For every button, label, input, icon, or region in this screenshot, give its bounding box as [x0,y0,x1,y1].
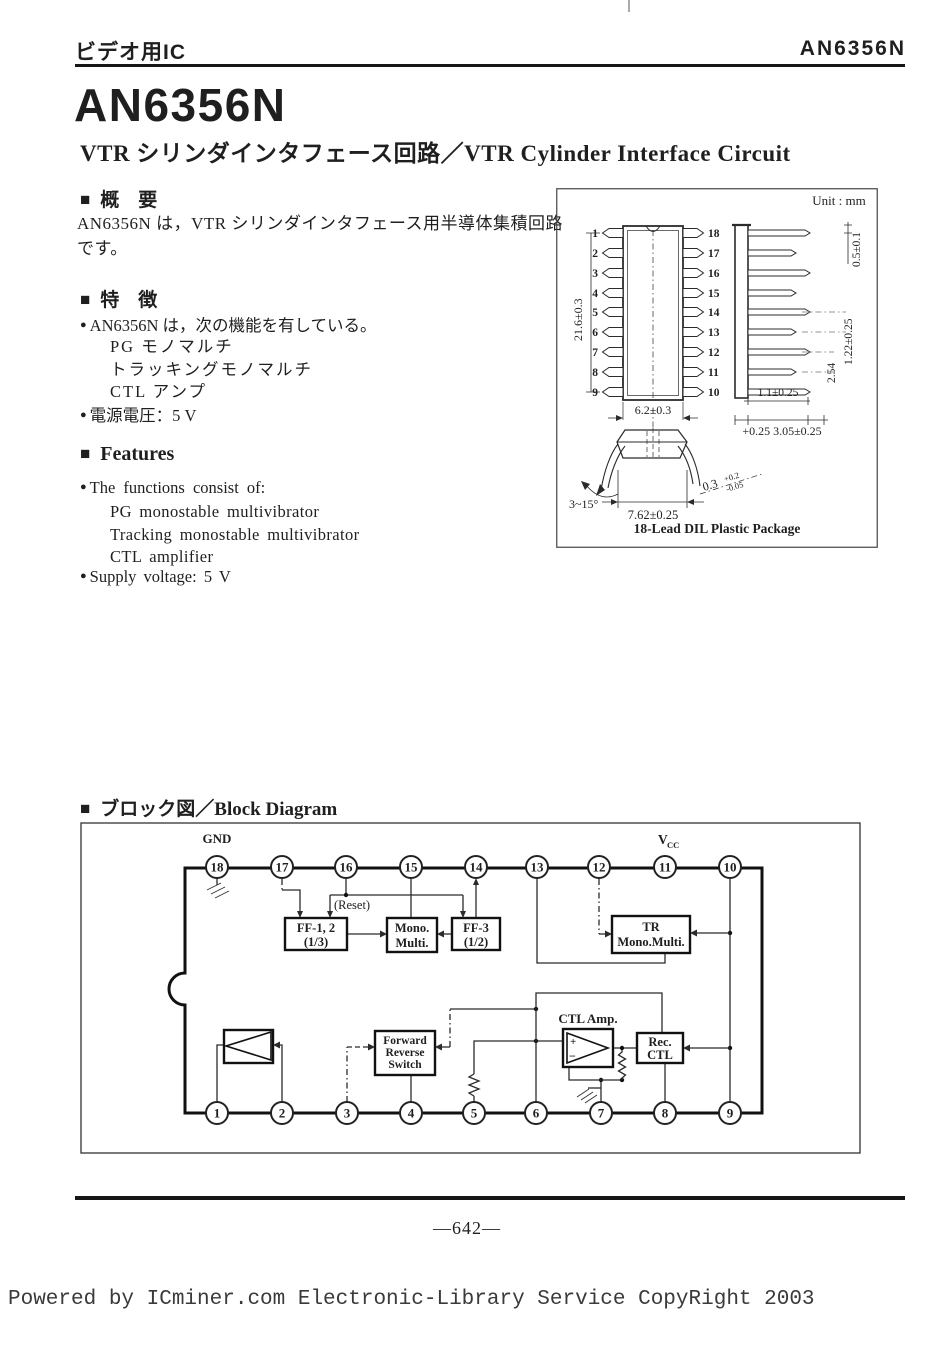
header-category: ビデオ用IC [75,36,186,66]
ff12-label: FF-1, 2 [297,921,335,935]
resistor-icon [619,1050,626,1080]
pin-number: 17 [276,860,290,875]
list-item: Tracking monostable multivibrator [110,524,360,547]
bullet-icon: ● [80,319,87,331]
section-overview-title: 概 要 [100,190,157,211]
pin-number: 1 [592,228,598,240]
pin-number: 18 [211,860,225,875]
features-en-item1-text: The functions consist of: [90,478,266,497]
section-marker-icon: ■ [80,799,90,819]
package-side-view: 0.5±0.1 1.22±0.25 2.54 1.1±0.25 +0.25 3.… [732,222,863,438]
pin-number: 14 [708,307,720,319]
ctl-amp-label: CTL Amp. [558,1011,617,1026]
bullet-icon: ● [80,570,87,582]
pin-number: 12 [593,860,606,875]
pin-number: 13 [708,327,720,339]
pin-number: 16 [340,860,354,875]
ground-icon [207,878,229,898]
pin-number: 7 [598,1106,605,1121]
list-item: CTL amplifier [110,546,360,569]
package-diagram: Unit : mm 1 [556,188,878,548]
resistor-icon [469,1074,479,1096]
pin-number: 16 [708,268,720,280]
section-block-diagram-heading: ■ブロック図／Block Diagram [80,794,337,821]
pin-number: 4 [592,288,598,300]
pin-number: 3 [344,1106,351,1121]
pin-number: 9 [727,1106,734,1121]
pin-number: 12 [708,347,720,359]
bullet-icon: ● [80,409,87,421]
ff3-label: FF-3 [463,921,489,935]
features-jp-item2-text: 電源電圧：5 V [90,406,197,425]
frs-label2: Reverse [386,1047,425,1059]
pin-number: 2 [592,248,598,260]
bullet-icon: ● [80,481,87,493]
ic-outline [169,868,762,1113]
pin-number: 2 [279,1106,286,1121]
rec-ctl-label: Rec. [648,1035,671,1049]
section-overview-heading: ■概 要 [80,185,157,212]
header-rule [75,64,905,67]
dim-lead-thickness: 0.3 [701,476,719,494]
pin-number: 13 [531,860,545,875]
list-item: PG monostable multivibrator [110,501,360,524]
copyright-notice: Powered by ICminer.com Electronic-Librar… [8,1288,815,1311]
ground-icon [577,1089,597,1103]
package-top-view: 1 2 3 4 5 6 7 8 9 18 17 16 15 14 13 12 1… [571,226,720,421]
dim-lead-pitch: 1.22±0.25 [843,318,855,365]
pin-number: 11 [659,860,671,875]
ff3-label2: (1/2) [464,935,488,949]
reset-label: (Reset) [334,898,370,912]
pin-number: 14 [470,860,484,875]
footer-rule [75,1196,905,1200]
features-jp-sublist: PG モノマルチ トラッキングモノマルチ CTL アンプ [110,336,313,404]
dim-seating: +0.25 3.05±0.25 [742,424,821,438]
scan-tick [628,0,630,12]
plus-label: + [570,1036,576,1048]
dim-lead-tip: 0.5±0.1 [851,232,863,267]
section-features-en-heading: ■Features [80,443,174,466]
section-marker-icon: ■ [80,444,90,464]
page-number: —642— [0,1218,934,1239]
page-title: AN6356N [74,78,287,132]
list-item: PG モノマルチ [110,336,313,359]
mono-label: Mono. [395,921,429,935]
section-features-jp-title: 特 徴 [100,290,157,311]
wires [217,878,732,1103]
list-item: CTL アンプ [110,381,313,404]
pin-number: 15 [708,288,720,300]
dim-row-pitch: 2.54 [826,363,838,383]
dim-lead-width: 1.1±0.25 [758,387,799,399]
list-item: トラッキングモノマルチ [110,359,313,382]
features-en-sublist: PG monostable multivibrator Tracking mon… [110,501,360,569]
datasheet-page: ビデオ用IC AN6356N AN6356N VTR シリンダインタフェース回路… [0,0,934,1350]
page-subtitle: VTR シリンダインタフェース回路／VTR Cylinder Interface… [80,134,791,168]
tr-label: TR [642,920,660,934]
section-block-diagram-title: ブロック図／Block Diagram [100,799,337,820]
gnd-label: GND [203,831,232,846]
features-en-item2-text: Supply voltage: 5 V [90,567,231,586]
features-jp-item1-text: AN6356N は，次の機能を有している。 [90,316,377,335]
unit-label: Unit : mm [812,193,865,208]
block-diagram: + − FF-1, 2 (1/3) Mono. Multi. FF-3 (1/2… [80,822,862,1155]
pin-number: 4 [408,1106,415,1121]
features-jp-item1: ●AN6356N は，次の機能を有している。 [80,312,377,336]
features-en-item2: ●Supply voltage: 5 V [80,567,231,587]
ff12-label2: (1/3) [304,935,328,949]
pin-number: 10 [708,387,720,399]
frs-label: Forward [383,1035,427,1047]
frs-label3: Switch [388,1059,422,1071]
pin-number: 7 [592,347,598,359]
pin-number: 15 [405,860,419,875]
section-features-jp-heading: ■特 徴 [80,285,157,312]
section-marker-icon: ■ [80,290,90,310]
pin-number: 10 [724,860,737,875]
header-part-number: AN6356N [800,37,906,61]
vcc-subscript: CC [667,840,679,850]
pin-number: 18 [708,228,720,240]
pin-number: 8 [662,1106,669,1121]
features-jp-item2: ●電源電圧：5 V [80,402,196,426]
pin-number: 6 [592,327,598,339]
pin-number: 17 [708,248,720,260]
pin-number: 9 [592,387,598,399]
pin-number: 5 [471,1106,478,1121]
section-features-en-title: Features [100,443,174,465]
pin-number: 3 [592,268,598,280]
features-en-item1: ●The functions consist of: [80,478,265,498]
dim-body-length: 21.6±0.3 [571,298,585,341]
pin-number: 1 [214,1106,221,1121]
pin-number: 6 [533,1106,540,1121]
mono-label2: Multi. [396,936,429,950]
package-caption: 18-Lead DIL Plastic Package [634,521,801,536]
section-marker-icon: ■ [80,190,90,210]
dim-row-spacing: 7.62±0.25 [628,508,679,522]
minus-label: − [569,1049,576,1063]
tr-label2: Mono.Multi. [617,935,684,949]
rec-ctl-label2: CTL [647,1048,673,1062]
package-front-view: 3~15° 7.62±0.25 0.3 +0.2 -0.05 [569,408,762,522]
dim-lead-angle: 3~15° [569,497,598,511]
pin-number: 5 [592,307,598,319]
pin-number: 8 [592,367,598,379]
overview-body: AN6356N は，VTR シリンダインタフェース用半導体集積回路です。 [77,212,577,261]
pin-number: 11 [708,367,719,379]
